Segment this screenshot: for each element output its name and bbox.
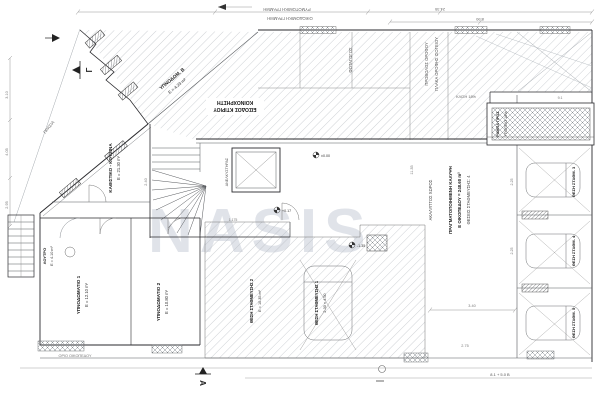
band-label-2: ΦΩΤΑΓΩΓΟΣ: [348, 47, 353, 73]
stall1-size: 2.30 × 4.50: [323, 293, 327, 312]
elevator-shaft: [232, 148, 280, 192]
annot-line1: ΑΚΑΛΥΠΤΟΣ ΧΩΡΟΣ: [428, 179, 433, 220]
dim-left1: 3.10: [5, 91, 9, 98]
level-value: -1.35: [357, 244, 365, 248]
stall1-label: ΘΕΣΗ ΣΤΑΘΜΕΥΣΗΣ 1: [314, 280, 319, 325]
bedroom1-name: ΥΠΝΟΔΩΜΑΤΙΟ 1: [76, 275, 81, 314]
bedroom2-area: E = 10.80 m²: [164, 289, 169, 314]
living-room-area: E = 21.30 m²: [116, 155, 121, 180]
section-a-label: A: [198, 380, 207, 386]
dim-bottom: 8.1 + 5.0 Β: [490, 372, 510, 377]
dim-d3: 11.35: [410, 165, 414, 174]
bedroom1-area: E = 12.10 m²: [84, 282, 89, 307]
stall3-label: ΘΕΣΗ ΣΤΑΘΜ. 3: [571, 166, 576, 197]
bedroom2-name: ΥΠΝΟΔΩΜΑΤΙΟ 2: [156, 282, 161, 321]
dim-bottom3: 3.40: [468, 304, 475, 308]
ramp-label2: ΥΠΟΓΕΙΟ 18%: [504, 111, 508, 137]
dim-left2: 4.05: [5, 148, 9, 155]
dim-left3: 2.95: [5, 201, 9, 208]
bath-area: E = 4.10 m²: [50, 245, 54, 265]
dim-stall1: 2.25: [510, 179, 514, 186]
notice-box: ΚΟΙΝΟΧΡΗΣΤΗ ΕΙΣΟΔΟΣ ΚΤΙΡΙΟΥ: [206, 98, 264, 115]
elevator-label: ΑΝΕΛΚΥΣΤΗΡΑΣ: [225, 157, 229, 186]
dim-d4: 9.1: [558, 96, 563, 100]
dim-stall2: 2.25: [510, 248, 514, 255]
floor-plan-canvas: ±0.00 +0.17 -1.35 ΚΟΙΝΟΧΡΗΣΤΗ ΕΙΣΟΔΟΣ ΚΤ…: [0, 0, 600, 400]
dim-top2: 8.90: [475, 17, 484, 22]
band-label-1: ΠΛΑΚΑ ΟΡΟΦΗΣ ΙΣΟΓΕΙΟΥ: [434, 37, 439, 91]
parking-cars: [519, 148, 590, 355]
notice-line1: ΚΟΙΝΟΧΡΗΣΤΗ: [217, 99, 253, 105]
stall2-label: ΘΕΣΗ ΣΤΑΘΜΕΥΣΗΣ 2: [249, 278, 254, 323]
level-value: ±0.00: [321, 154, 330, 158]
annot-line4: ΘΕΣΕΙΣ ΣΤΑΘΜΕΥΣΗΣ: 4: [466, 175, 471, 225]
stall5-label: ΘΕΣΗ ΣΤΑΘΜ. 5: [571, 307, 576, 338]
section-gamma-label: Γ: [85, 67, 94, 72]
ramp-slope: ΚΛΙΣΗ 18%: [456, 95, 476, 99]
dim-top: 24.35: [434, 7, 445, 12]
level-value: +0.17: [282, 209, 291, 213]
ramp-label1: ΡΑΜΠΑ ΠΡΟΣ: [496, 111, 500, 137]
bath-name: ΛΟΥΤΡΟ: [42, 248, 47, 264]
floor-plan-sheet: NASIS: [0, 0, 600, 400]
dim-d2: 1.175: [229, 218, 238, 222]
living-room-name: ΚΑΘΙΣΤΙΚΟ - ΚΟΥΖΙΝΑ: [108, 143, 113, 193]
dim-bottom2: 2.75: [461, 344, 468, 348]
service-stair: [8, 215, 75, 277]
annot-line2: ΠΡΑΓΜΑΤΟΠΟΙΗΜΕΝΗ ΚΑΛΥΨΗ: [448, 166, 453, 234]
boundary-label-outer: ΡΥΜΟΤΟΜΙΚΗ ΓΡΑΜΜΗ: [263, 7, 310, 12]
boundary-label-inner: ΟΙΚΟΔΟΜΙΚΗ ΓΡΑΜΜΗ: [267, 16, 312, 21]
plot-edge-label: ΟΡΙΟ ΟΙΚΟΠΕΔΟΥ: [58, 354, 91, 358]
prasia-label: ΠΡΑΣΙΑ: [42, 120, 55, 135]
room-walls: [40, 202, 200, 345]
north-arrow-icon: [218, 4, 226, 10]
band-label-0: ΠΡΟΒΟΛΟΣ ΟΡΟΦΟΥ: [424, 42, 429, 86]
stall4-label: ΘΕΣΗ ΣΤΑΘΜ. 4: [571, 235, 576, 266]
annot-line3: Ε ΟΙΚΟΠΕΔΟΥ = 248.60 m²: [457, 172, 462, 228]
notice-line2: ΕΙΣΟΔΟΣ ΚΤΙΡΙΟΥ: [213, 106, 257, 112]
stall2-size: E = 10.35 m²: [258, 289, 262, 312]
dim-d1: 2.40: [144, 178, 148, 185]
